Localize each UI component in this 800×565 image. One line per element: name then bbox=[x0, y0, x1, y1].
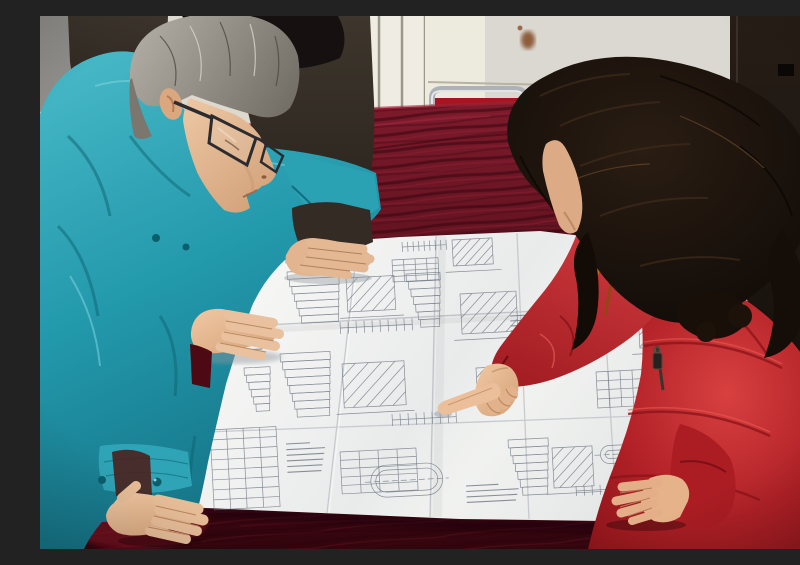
photo-scene: Three people lean over a large folded en… bbox=[40, 16, 800, 549]
scene-canvas bbox=[40, 16, 800, 549]
vignette bbox=[40, 16, 800, 549]
